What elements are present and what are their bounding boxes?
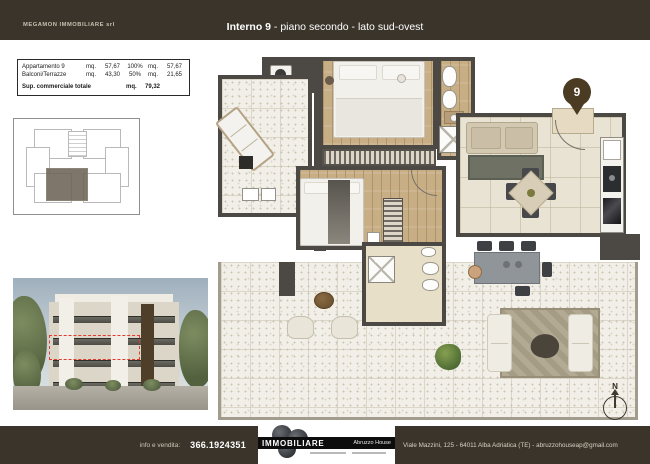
outdoor-armchair <box>331 316 358 339</box>
logo-fineprint <box>352 452 386 454</box>
sofa-seam <box>491 343 508 344</box>
row-label: Balconi/Terrazze <box>22 71 86 79</box>
potted-plant <box>435 344 461 370</box>
header-band: MEGAMON IMMOBILIARE srl Interno 9 - pian… <box>0 0 650 40</box>
kitchen-sink <box>603 166 621 192</box>
outdoor-chair <box>542 262 552 277</box>
row-label: Appartamento 9 <box>22 63 86 71</box>
footer-info-label: info e vendita: <box>140 442 180 449</box>
outdoor-chair <box>521 241 536 251</box>
outdoor-chair <box>515 286 530 296</box>
bidet <box>442 90 457 109</box>
footer-left-band: info e vendita: 366.1924351 <box>0 426 258 464</box>
logo-brand-text: IMMOBILIARE <box>262 439 325 448</box>
bed-throw <box>328 180 350 244</box>
double-bed <box>333 61 425 138</box>
unit-cell: mq. <box>148 63 162 71</box>
brochure-page: MEGAMON IMMOBILIARE srl Interno 9 - pian… <box>0 0 650 464</box>
unit-cell: mq. <box>86 63 100 71</box>
outdoor-dining-table <box>474 252 540 284</box>
logo-fineprint <box>310 452 346 454</box>
wardrobe-strip <box>322 149 436 166</box>
table-row: Balconi/Terrazze mq. 43,30 50% mq. 21,65 <box>22 71 185 79</box>
bed-blanket <box>336 98 422 136</box>
toilet-2 <box>422 262 439 275</box>
surface-summary-table: Appartamento 9 mq. 57,67 100% mq. 57,67 … <box>17 59 190 96</box>
sink-2 <box>421 247 436 257</box>
key-plan-diagram <box>13 118 140 215</box>
pillow <box>304 182 330 194</box>
toilet <box>442 66 457 87</box>
fridge <box>603 140 621 160</box>
unit-pin: 9 <box>563 78 591 106</box>
outdoor-armchair <box>287 316 314 339</box>
unit-location-marker <box>49 335 140 360</box>
percent-cell: 100% <box>122 63 148 71</box>
footprint-room <box>83 173 121 203</box>
unit-cell: mq. <box>148 71 162 79</box>
value-cell: 43,30 <box>100 71 122 79</box>
compass-icon <box>603 396 627 420</box>
table-total-row: Sup. commerciale totale mq. 79,32 <box>22 83 185 91</box>
dining-set <box>504 168 558 218</box>
bed-2 <box>300 178 364 246</box>
coffee-table <box>314 292 334 309</box>
sofa-seam <box>572 343 589 344</box>
page-title: Interno 9 - piano secondo - lato sud-ove… <box>0 21 650 33</box>
person-figure <box>468 265 482 279</box>
footer-address: Viale Mazzini, 125 - 64011 Alba Adriatic… <box>403 442 618 449</box>
unit-pin-pointer <box>570 104 584 115</box>
total-label: Sup. commerciale totale <box>22 83 126 91</box>
table-centerpiece <box>527 189 535 197</box>
sofa-cushion <box>471 127 501 149</box>
bidet-2 <box>422 279 439 291</box>
shrub <box>105 380 121 391</box>
unit-highlight <box>46 168 88 201</box>
sofa-cushion <box>505 127 533 149</box>
sink-basin <box>609 175 615 181</box>
wardrobe-2 <box>383 198 403 248</box>
agency-logo: IMMOBILIARE Abruzzo House <box>258 424 395 464</box>
stair-core <box>68 131 87 157</box>
tableware <box>515 261 522 268</box>
total-value: 79,32 <box>140 83 162 91</box>
nightstand <box>325 76 334 85</box>
shrub <box>65 378 83 390</box>
unit-subtitle: - piano secondo - lato sud-ovest <box>271 21 423 33</box>
outdoor-chair <box>477 241 492 251</box>
footprint-outline <box>26 129 129 205</box>
logo-band: IMMOBILIARE Abruzzo House <box>258 437 395 449</box>
shrub <box>143 379 161 391</box>
tableware <box>503 261 510 268</box>
lounger-line <box>241 138 257 151</box>
percent-cell: 50% <box>122 71 148 79</box>
kitchen-counter <box>600 137 624 233</box>
table-row: Appartamento 9 mq. 57,67 100% mq. 57,67 <box>22 63 185 71</box>
value-cell: 57,67 <box>162 63 184 71</box>
cooktop <box>603 198 621 224</box>
balcony-unit <box>242 188 259 201</box>
unit-cell: mq. <box>86 71 100 79</box>
balcony-table <box>239 156 253 169</box>
floor-plan: 9 N <box>215 50 645 424</box>
balcony-unit <box>261 188 276 201</box>
footer-right-band: Viale Mazzini, 125 - 64011 Alba Adriatic… <box>395 426 650 464</box>
unit-title: Interno 9 <box>227 21 271 33</box>
lounger-line <box>230 124 246 137</box>
tree-right <box>179 310 208 388</box>
nightstand <box>397 74 406 83</box>
unit-cell: mq. <box>126 83 140 91</box>
outdoor-chair <box>499 241 514 251</box>
logo-brand-secondary: Abruzzo House <box>353 440 391 446</box>
wall-segment <box>600 234 640 260</box>
shower-2 <box>368 256 395 283</box>
footer-phone: 366.1924351 <box>190 440 246 450</box>
value-cell: 21,65 <box>162 71 184 79</box>
sofa <box>466 122 538 154</box>
outdoor-sofa <box>568 314 593 372</box>
pillow <box>339 65 377 80</box>
value-cell: 57,67 <box>100 63 122 71</box>
outdoor-sofa <box>487 314 512 372</box>
wall-segment <box>279 262 295 296</box>
